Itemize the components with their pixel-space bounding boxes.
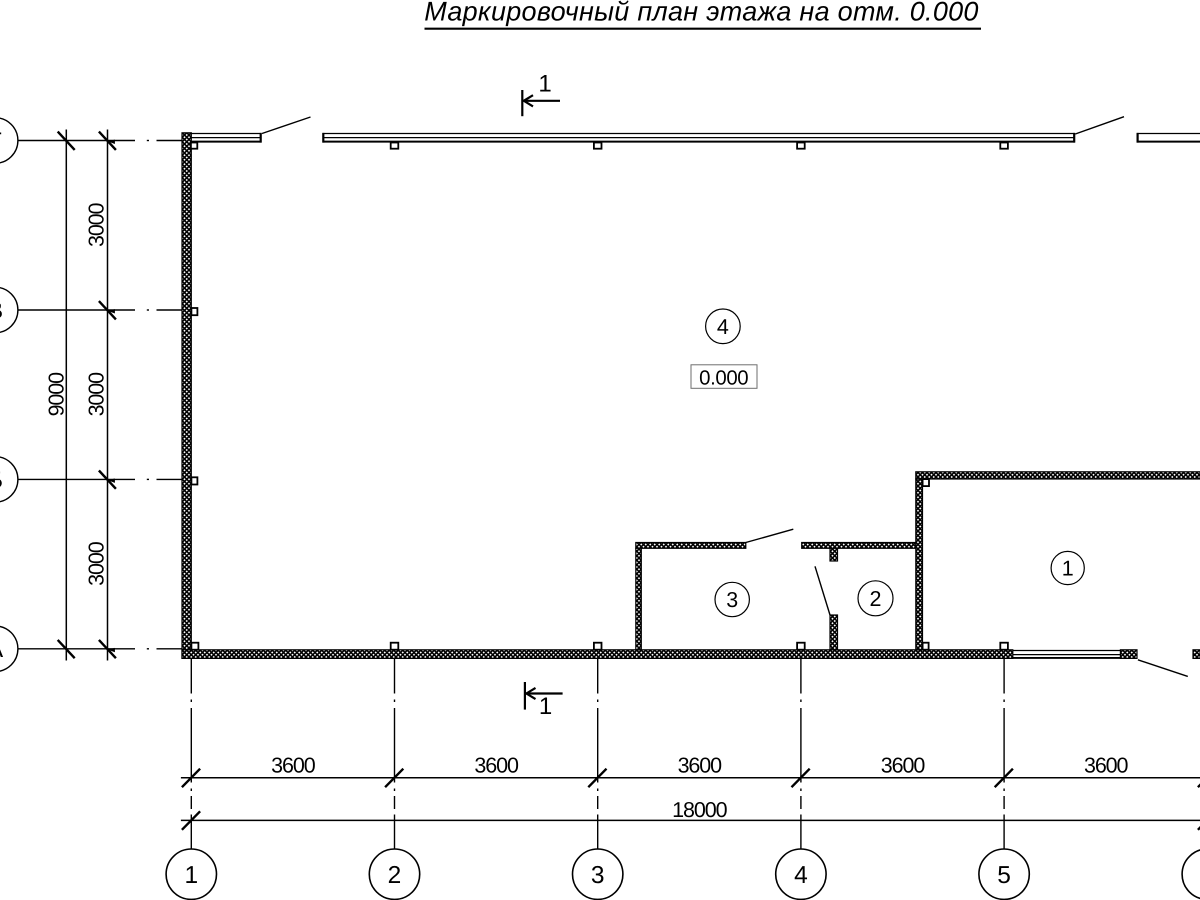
svg-text:4: 4 bbox=[717, 315, 729, 339]
svg-text:5: 5 bbox=[997, 862, 1011, 889]
svg-text:0.000: 0.000 bbox=[699, 368, 748, 390]
svg-text:3000: 3000 bbox=[84, 202, 108, 247]
svg-text:А: А bbox=[0, 636, 3, 663]
svg-text:1: 1 bbox=[1062, 557, 1074, 581]
svg-text:3600: 3600 bbox=[1084, 754, 1129, 778]
svg-text:2: 2 bbox=[870, 587, 882, 611]
svg-text:3000: 3000 bbox=[84, 541, 108, 586]
svg-text:4: 4 bbox=[794, 862, 808, 889]
svg-text:Б: Б bbox=[0, 467, 3, 494]
svg-text:9000: 9000 bbox=[44, 372, 68, 417]
svg-text:3: 3 bbox=[726, 588, 738, 612]
svg-text:1: 1 bbox=[539, 693, 552, 720]
svg-text:3: 3 bbox=[591, 862, 605, 889]
svg-text:3600: 3600 bbox=[881, 754, 926, 778]
svg-text:3600: 3600 bbox=[271, 754, 316, 778]
svg-text:2: 2 bbox=[388, 862, 402, 889]
svg-text:Г: Г bbox=[0, 128, 2, 155]
svg-text:1: 1 bbox=[538, 71, 551, 98]
svg-text:3600: 3600 bbox=[678, 754, 723, 778]
svg-text:3600: 3600 bbox=[474, 754, 519, 778]
svg-text:3000: 3000 bbox=[84, 372, 108, 417]
svg-text:В: В bbox=[0, 297, 3, 324]
svg-text:Маркировочный план этажа на от: Маркировочный план этажа на отм. 0.000 bbox=[424, 0, 978, 27]
svg-text:18000: 18000 bbox=[672, 798, 727, 822]
svg-text:1: 1 bbox=[184, 862, 198, 889]
